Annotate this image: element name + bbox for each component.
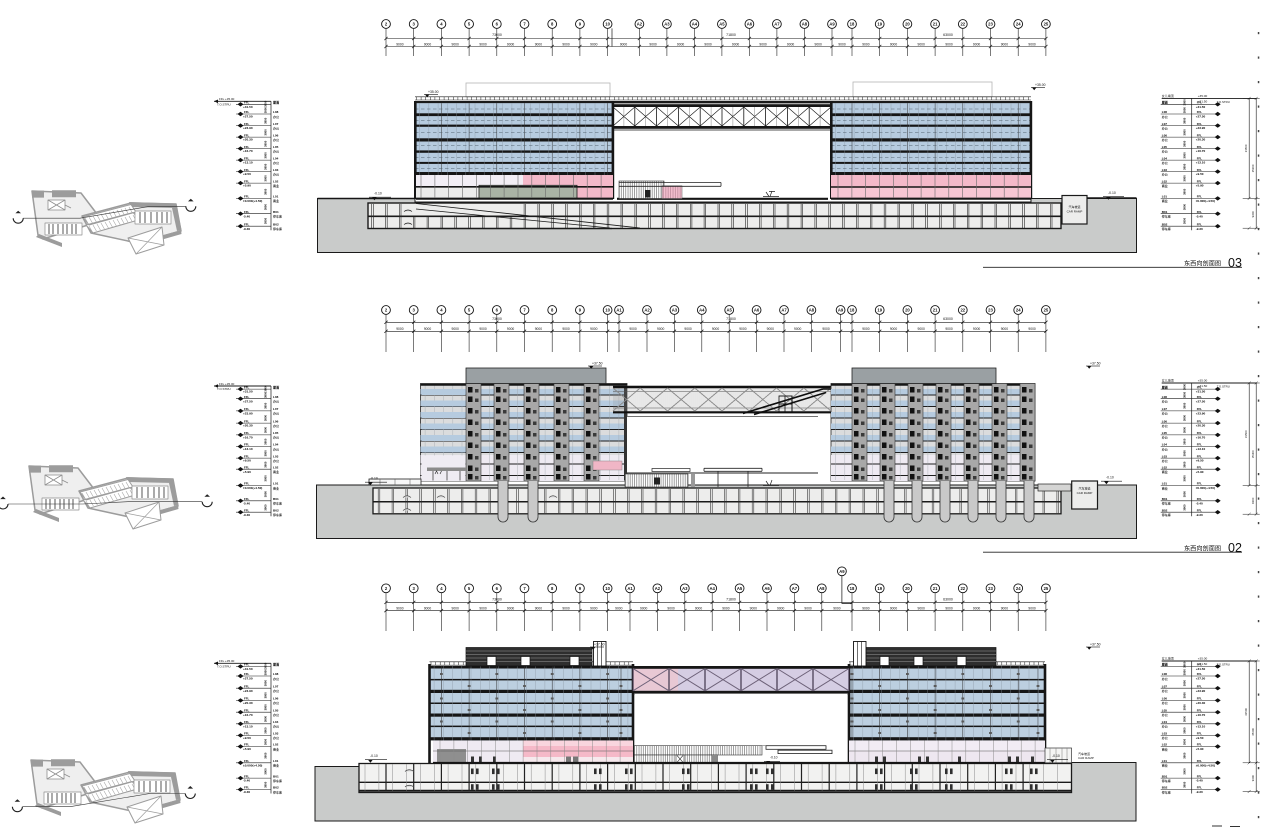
svg-text:停车库: 停车库	[273, 789, 282, 794]
svg-text:3800: 3800	[1183, 217, 1187, 224]
svg-text:商业: 商业	[1162, 198, 1168, 203]
svg-text:±0.000(+4.50): ±0.000(+4.50)	[1196, 486, 1215, 490]
svg-text:商业: 商业	[1162, 469, 1168, 474]
svg-text:L02: L02	[1162, 465, 1168, 469]
svg-text:9000: 9000	[945, 327, 953, 331]
svg-text:+9.50: +9.50	[1196, 459, 1204, 463]
svg-text:3800: 3800	[1183, 752, 1187, 759]
svg-text:FFL: FFL	[1197, 684, 1203, 688]
svg-text:L02: L02	[273, 743, 279, 747]
svg-text:3800: 3800	[264, 692, 268, 699]
svg-text:21: 21	[933, 308, 938, 313]
svg-text:FFL: FFL	[1197, 732, 1203, 736]
svg-text:FFL: FFL	[244, 443, 250, 447]
svg-text:A7: A7	[774, 22, 780, 27]
svg-text:FFL: FFL	[1197, 697, 1203, 701]
svg-text:+9.50: +9.50	[243, 736, 251, 740]
svg-text:办公: 办公	[1162, 458, 1168, 463]
svg-text:20: 20	[905, 586, 910, 591]
svg-text:L08: L08	[1162, 672, 1168, 676]
svg-text:东西向剖面图: 东西向剖面图	[1184, 545, 1221, 553]
svg-text:3800: 3800	[1183, 204, 1187, 211]
svg-text:35300: 35300	[1251, 164, 1255, 172]
svg-text:FFL: FFL	[1197, 443, 1203, 447]
svg-text:L03: L03	[273, 454, 279, 458]
svg-text:FFL: FFL	[1197, 385, 1203, 389]
svg-text:21: 21	[933, 22, 938, 27]
svg-text:9000: 9000	[822, 327, 830, 331]
svg-text:20: 20	[905, 308, 910, 313]
svg-text:L04: L04	[273, 720, 279, 724]
svg-text:3800: 3800	[264, 662, 268, 669]
svg-text:9000: 9000	[649, 42, 657, 46]
svg-text:A6: A6	[754, 308, 760, 313]
svg-text:L07: L07	[273, 122, 279, 126]
svg-text:03: 03	[1228, 256, 1242, 270]
svg-text:L03: L03	[1162, 732, 1168, 736]
svg-text:+16.70: +16.70	[1196, 149, 1206, 153]
svg-text:停车库: 停车库	[273, 512, 282, 517]
svg-text:9000: 9000	[1028, 607, 1036, 611]
svg-text:办公: 办公	[273, 137, 279, 142]
svg-text:L02: L02	[273, 465, 279, 469]
svg-text:9000: 9000	[890, 327, 898, 331]
svg-text:FFL: FFL	[1197, 454, 1203, 458]
svg-text:FFL: FFL	[1197, 663, 1203, 667]
svg-text:B01: B01	[273, 210, 279, 214]
svg-text:办公: 办公	[1162, 724, 1168, 729]
svg-text:办公: 办公	[273, 446, 279, 451]
svg-text:3800: 3800	[1183, 680, 1187, 687]
svg-text:办公: 办公	[273, 724, 279, 729]
svg-text:FFL: FFL	[1197, 407, 1203, 411]
svg-text:L01: L01	[273, 195, 279, 199]
svg-text:9000: 9000	[739, 327, 747, 331]
svg-text:9000: 9000	[787, 42, 795, 46]
svg-text:9000: 9000	[684, 327, 692, 331]
svg-text:9000: 9000	[838, 42, 846, 46]
svg-text:FFL: FFL	[1197, 759, 1203, 763]
svg-text:办公: 办公	[1162, 676, 1168, 681]
svg-text:FFL: FFL	[244, 110, 250, 114]
svg-text:FFL: FFL	[244, 454, 250, 458]
svg-text:FFL: FFL	[1197, 720, 1203, 724]
svg-text:FFL: FFL	[1197, 110, 1203, 114]
svg-text:A5: A5	[727, 308, 733, 313]
svg-text:3800: 3800	[264, 217, 268, 224]
svg-text:9000: 9000	[396, 327, 404, 331]
svg-text:+37.50: +37.50	[1090, 362, 1101, 366]
svg-text:FFL: FFL	[244, 179, 250, 183]
svg-text:FFL: FFL	[244, 407, 250, 411]
svg-text:3800: 3800	[1183, 129, 1187, 136]
svg-text:9000: 9000	[1028, 327, 1036, 331]
svg-text:9000: 9000	[973, 327, 981, 331]
svg-text:9000: 9000	[759, 42, 767, 46]
svg-text:+20.30: +20.30	[243, 701, 253, 705]
svg-text:-0.10: -0.10	[374, 192, 382, 196]
svg-text:FFL: FFL	[1197, 210, 1203, 214]
svg-text:9000: 9000	[1001, 607, 1009, 611]
svg-text:3800: 3800	[1183, 781, 1187, 788]
svg-text:B02: B02	[1162, 786, 1168, 790]
svg-text:9000: 9000	[535, 42, 543, 46]
svg-text:+23.90: +23.90	[1196, 412, 1206, 416]
svg-text:FFL: FFL	[244, 720, 250, 724]
svg-text:9000: 9000	[677, 42, 685, 46]
svg-text:办公: 办公	[273, 411, 279, 416]
svg-text:FFL: FFL	[244, 759, 250, 763]
svg-text:L08: L08	[273, 672, 279, 676]
svg-text:+23.90: +23.90	[243, 412, 253, 416]
svg-text:办公: 办公	[1162, 688, 1168, 693]
svg-text:A9: A9	[829, 22, 835, 27]
svg-text:25: 25	[1044, 586, 1049, 591]
svg-text:9000: 9000	[535, 607, 543, 611]
svg-text:B01: B01	[1162, 210, 1168, 214]
svg-text:19: 19	[877, 22, 882, 27]
svg-text:FFL: FFL	[1197, 431, 1203, 435]
svg-text:FFL: FFL	[1197, 774, 1203, 778]
svg-text:L06: L06	[273, 133, 279, 137]
svg-text:办公: 办公	[1162, 700, 1168, 705]
svg-text:3800: 3800	[1183, 117, 1187, 124]
svg-text:3800: 3800	[1183, 704, 1187, 711]
svg-text:FFL: FFL	[1197, 482, 1203, 486]
svg-text:3800: 3800	[1183, 692, 1187, 699]
svg-text:9000: 9000	[615, 607, 623, 611]
svg-text:屋面: 屋面	[273, 100, 279, 105]
svg-text:A2: A2	[655, 586, 661, 591]
svg-text:+31.50: +31.50	[1196, 105, 1206, 109]
svg-text:L03: L03	[1162, 168, 1168, 172]
svg-text:L07: L07	[1162, 122, 1168, 126]
svg-text:9000: 9000	[452, 42, 460, 46]
svg-text:FFL: FFL	[244, 168, 250, 172]
svg-text:3800: 3800	[264, 450, 268, 457]
svg-text:9000: 9000	[452, 607, 460, 611]
svg-text:停车库: 停车库	[1162, 501, 1171, 506]
svg-text:办公: 办公	[273, 676, 279, 681]
svg-text:女儿墙顶: 女儿墙顶	[1162, 656, 1174, 661]
svg-text:9000: 9000	[507, 607, 515, 611]
svg-text:3800: 3800	[1183, 715, 1187, 722]
svg-text:9000: 9000	[424, 327, 432, 331]
svg-text:FFL: FFL	[244, 465, 250, 469]
svg-text:9000: 9000	[712, 327, 720, 331]
svg-text:9000: 9000	[973, 42, 981, 46]
svg-text:商业: 商业	[273, 485, 279, 490]
svg-text:A1: A1	[616, 308, 622, 313]
svg-text:3800: 3800	[1183, 461, 1187, 468]
svg-text:9000: 9000	[833, 607, 841, 611]
svg-text:24: 24	[1016, 586, 1021, 591]
svg-text:±0.000(+4.50): ±0.000(+4.50)	[1196, 199, 1215, 203]
svg-text:办公: 办公	[1162, 125, 1168, 130]
svg-text:CAR RAMP: CAR RAMP	[1067, 210, 1083, 214]
svg-text:A4: A4	[710, 586, 716, 591]
svg-text:3800: 3800	[1183, 450, 1187, 457]
svg-text:10: 10	[605, 22, 610, 27]
svg-text:停车库: 停车库	[1162, 789, 1171, 794]
svg-text:FFL: FFL	[1197, 179, 1203, 183]
svg-text:FFL: FFL	[1197, 168, 1203, 172]
svg-text:办公: 办公	[273, 688, 279, 693]
svg-text:办公: 办公	[1162, 435, 1168, 440]
svg-text:+5.90: +5.90	[243, 470, 251, 474]
svg-text:+13.10: +13.10	[1196, 161, 1206, 165]
svg-text:3800: 3800	[1183, 384, 1187, 391]
svg-text:办公: 办公	[1162, 411, 1168, 416]
svg-text:+9.50: +9.50	[243, 459, 251, 463]
svg-text:+27.50: +27.50	[243, 115, 253, 119]
svg-text:3800: 3800	[264, 768, 268, 775]
svg-text:9300: 9300	[1251, 497, 1255, 504]
svg-text:3800: 3800	[1183, 768, 1187, 775]
svg-text:L01: L01	[273, 482, 279, 486]
svg-text:FFL: FFL	[244, 508, 250, 512]
svg-text:9000: 9000	[479, 327, 487, 331]
svg-text:-9.30: -9.30	[243, 513, 250, 517]
svg-text:L06: L06	[1162, 133, 1168, 137]
svg-text:办公: 办公	[273, 735, 279, 740]
svg-text:商业: 商业	[273, 469, 279, 474]
svg-text:L08: L08	[273, 110, 279, 114]
svg-text:FFL: FFL	[1197, 195, 1203, 199]
svg-text:女儿墙顶: 女儿墙顶	[1162, 378, 1174, 383]
svg-text:3800: 3800	[1183, 152, 1187, 159]
svg-text:9000: 9000	[945, 42, 953, 46]
svg-text:办公: 办公	[273, 125, 279, 130]
svg-text:L06: L06	[273, 419, 279, 423]
svg-text:FFL: FFL	[244, 385, 250, 389]
svg-text:3800: 3800	[264, 402, 268, 409]
svg-text:19: 19	[877, 586, 882, 591]
svg-text:+27.50: +27.50	[1196, 115, 1206, 119]
svg-text:+16.70: +16.70	[1196, 713, 1206, 717]
svg-text:9000: 9000	[507, 42, 515, 46]
svg-text:63000: 63000	[943, 33, 953, 37]
svg-text:25: 25	[1044, 22, 1049, 27]
svg-text:9000: 9000	[396, 42, 404, 46]
svg-text:+16.70: +16.70	[243, 436, 253, 440]
svg-text:FFL: FFL	[244, 743, 250, 747]
svg-text:+37.50: +37.50	[1090, 643, 1101, 647]
svg-text:22: 22	[960, 586, 965, 591]
svg-text:A6: A6	[747, 22, 753, 27]
svg-text:±0.000(+4.50): ±0.000(+4.50)	[243, 763, 262, 767]
svg-text:9000: 9000	[396, 607, 404, 611]
svg-text:FFL: FFL	[1197, 508, 1203, 512]
svg-text:A8: A8	[819, 586, 825, 591]
svg-text:商业: 商业	[1162, 763, 1168, 768]
svg-text:9000: 9000	[424, 42, 432, 46]
svg-text:屋面: 屋面	[273, 384, 279, 389]
svg-text:9000: 9000	[815, 42, 823, 46]
svg-text:9000: 9000	[562, 607, 570, 611]
svg-text:3800: 3800	[1183, 661, 1187, 668]
svg-text:3800: 3800	[264, 461, 268, 468]
svg-text:+9.50: +9.50	[1196, 736, 1204, 740]
svg-text:FFL: FFL	[244, 145, 250, 149]
svg-text:+16.70: +16.70	[243, 713, 253, 717]
svg-text:FFL: FFL	[244, 732, 250, 736]
svg-text:A3: A3	[682, 586, 688, 591]
svg-text:71800: 71800	[726, 597, 736, 601]
svg-text:FFL: FFL	[244, 122, 250, 126]
svg-text:-0.10: -0.10	[1052, 754, 1060, 758]
svg-text:22: 22	[960, 22, 965, 27]
svg-text:3800: 3800	[264, 781, 268, 788]
svg-text:31500: 31500	[1244, 708, 1248, 716]
svg-text:9000: 9000	[918, 607, 926, 611]
svg-text:9000: 9000	[918, 327, 926, 331]
svg-text:73000: 73000	[492, 317, 502, 321]
svg-text:3800: 3800	[1183, 438, 1187, 445]
svg-text:办公: 办公	[1162, 446, 1168, 451]
svg-text:3800: 3800	[264, 385, 268, 392]
svg-text:FFL: FFL	[244, 210, 250, 214]
svg-text:停车库: 停车库	[273, 501, 282, 506]
svg-text:FFL: FFL	[244, 419, 250, 423]
svg-text:-5.40: -5.40	[1196, 214, 1203, 218]
svg-text:停车库: 停车库	[1162, 226, 1171, 231]
svg-text:3800: 3800	[264, 426, 268, 433]
svg-text:停车库: 停车库	[273, 226, 282, 231]
svg-text:+31.50: +31.50	[243, 390, 253, 394]
svg-text:L02: L02	[273, 179, 279, 183]
svg-text:商业: 商业	[273, 746, 279, 751]
svg-text:A2: A2	[637, 22, 643, 27]
svg-text:L06: L06	[1162, 697, 1168, 701]
svg-text:3800: 3800	[264, 669, 268, 676]
svg-text:办公: 办公	[273, 148, 279, 153]
svg-text:FFL: FFL	[1197, 395, 1203, 399]
svg-text:A2: A2	[644, 308, 650, 313]
svg-text:L04: L04	[1162, 720, 1168, 724]
svg-text:L06: L06	[1162, 419, 1168, 423]
svg-text:18: 18	[850, 22, 855, 27]
svg-text:FFL: FFL	[1197, 156, 1203, 160]
svg-text:办公: 办公	[273, 160, 279, 165]
svg-text:3800: 3800	[1183, 727, 1187, 734]
svg-text:办公: 办公	[273, 435, 279, 440]
svg-text:办公: 办公	[1162, 712, 1168, 717]
svg-text:+27.50: +27.50	[243, 399, 253, 403]
svg-text:3800: 3800	[264, 163, 268, 170]
svg-text:+20.30: +20.30	[1196, 424, 1206, 428]
svg-text:办公: 办公	[1162, 399, 1168, 404]
svg-text:屋面: 屋面	[1162, 100, 1168, 105]
svg-text:屋面: 屋面	[1162, 662, 1168, 667]
svg-text:+13.10: +13.10	[1196, 447, 1206, 451]
svg-text:63000: 63000	[943, 317, 953, 321]
svg-text:办公: 办公	[273, 700, 279, 705]
svg-text:-9.30: -9.30	[243, 227, 250, 231]
svg-text:L01: L01	[1162, 482, 1168, 486]
svg-text:+5.90: +5.90	[1196, 747, 1204, 751]
svg-text:FFL: FFL	[1197, 133, 1203, 137]
svg-text:办公: 办公	[1162, 423, 1168, 428]
svg-text:3800: 3800	[264, 188, 268, 195]
svg-text:9000: 9000	[890, 607, 898, 611]
svg-text:3800: 3800	[1183, 475, 1187, 482]
svg-text:L01: L01	[1162, 759, 1168, 763]
svg-text:+23.90: +23.90	[243, 126, 253, 130]
svg-text:办公: 办公	[1162, 735, 1168, 740]
svg-text:+31.50: +31.50	[1196, 390, 1206, 394]
svg-text:22: 22	[960, 308, 965, 313]
svg-text:73000: 73000	[492, 597, 502, 601]
svg-text:FFL: FFL	[244, 663, 250, 667]
svg-text:B01: B01	[1162, 774, 1168, 778]
svg-text:+35.00: +35.00	[1035, 83, 1046, 87]
svg-text:女儿墙顶: 女儿墙顶	[1162, 93, 1174, 98]
svg-text:T.O.STRU: T.O.STRU	[217, 664, 231, 668]
svg-text:19: 19	[877, 308, 882, 313]
svg-text:汽车坡道: 汽车坡道	[1078, 486, 1090, 491]
svg-text:L05: L05	[1162, 708, 1168, 712]
svg-text:A5: A5	[737, 586, 743, 591]
svg-text:3800: 3800	[264, 704, 268, 711]
svg-text:9000: 9000	[732, 42, 740, 46]
svg-text:3800: 3800	[264, 504, 268, 511]
svg-text:FFL: FFL	[244, 133, 250, 137]
svg-text:-5.40: -5.40	[243, 779, 250, 783]
svg-text:办公: 办公	[273, 458, 279, 463]
svg-text:办公: 办公	[273, 114, 279, 119]
svg-text:B02: B02	[1162, 508, 1168, 512]
svg-text:9000: 9000	[1001, 42, 1009, 46]
svg-text:9000: 9000	[590, 327, 598, 331]
svg-text:B02: B02	[273, 222, 279, 226]
svg-text:±0.000(+4.50): ±0.000(+4.50)	[243, 486, 262, 490]
svg-text:办公: 办公	[1162, 114, 1168, 119]
svg-text:+5.90: +5.90	[1196, 184, 1204, 188]
svg-text:9000: 9000	[629, 327, 637, 331]
svg-text:9000: 9000	[767, 327, 775, 331]
svg-text:25: 25	[1044, 308, 1049, 313]
svg-text:+5.90: +5.90	[1196, 470, 1204, 474]
svg-text:-0.10: -0.10	[370, 477, 378, 481]
svg-text:9000: 9000	[750, 607, 758, 611]
svg-text:-0.10: -0.10	[1106, 476, 1114, 480]
svg-text:办公: 办公	[1162, 137, 1168, 142]
svg-text:+35.00: +35.00	[1198, 657, 1208, 661]
svg-text:A9: A9	[838, 308, 844, 313]
svg-text:3800: 3800	[264, 129, 268, 136]
svg-text:L07: L07	[1162, 684, 1168, 688]
svg-text:31500: 31500	[1244, 430, 1248, 438]
svg-text:9300: 9300	[1251, 775, 1255, 782]
svg-text:3800: 3800	[264, 738, 268, 745]
svg-text:A5: A5	[719, 22, 725, 27]
svg-text:18: 18	[850, 586, 855, 591]
svg-text:商业: 商业	[273, 183, 279, 188]
svg-text:A1: A1	[627, 586, 633, 591]
svg-text:-5.40: -5.40	[1196, 779, 1203, 783]
svg-text:3800: 3800	[264, 100, 268, 107]
svg-text:L07: L07	[1162, 407, 1168, 411]
svg-text:3800: 3800	[1183, 402, 1187, 409]
svg-text:3800: 3800	[264, 140, 268, 147]
svg-text:9000: 9000	[667, 607, 675, 611]
svg-text:+27.50: +27.50	[1196, 399, 1206, 403]
svg-text:3800: 3800	[264, 414, 268, 421]
svg-text:L03: L03	[1162, 454, 1168, 458]
svg-text:+31.50: +31.50	[1196, 667, 1206, 671]
svg-text:FFL: FFL	[244, 708, 250, 712]
